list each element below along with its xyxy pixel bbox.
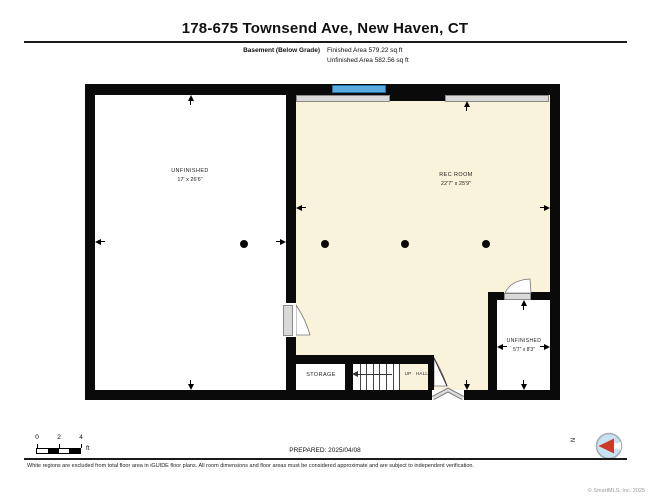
scale-tick-label: 4 — [79, 434, 83, 441]
floorplan-page: 178-675 Townsend Ave, New Haven, CT Base… — [0, 0, 650, 502]
room-unfinished-left — [95, 95, 286, 390]
door-swing-icon — [503, 277, 533, 294]
room-name: STORAGE — [306, 371, 336, 380]
door-leaf — [283, 305, 293, 336]
room-label: UNFINISHED 17' x 26'6" — [171, 167, 209, 184]
prepared-date: PREPARED: 2025/04/08 — [0, 447, 650, 454]
hall-label: HALL — [416, 371, 428, 376]
unfinished-area-text: Unfinished Area 582.56 sq ft — [327, 57, 409, 64]
bulkhead-doors-icon — [430, 385, 466, 400]
wall-segment — [488, 292, 504, 300]
measure-arrow-icon — [188, 95, 194, 101]
column-dot — [482, 240, 490, 248]
measure-arrow-icon — [296, 205, 302, 211]
floor-label: Basement (Below Grade) — [215, 47, 320, 54]
room-label: REC ROOM 22'7" x 25'9" — [439, 171, 472, 188]
stair-tread — [366, 364, 367, 390]
measure-arrow-icon — [521, 384, 527, 390]
disclaimer-text: White regions are excluded from total fl… — [27, 463, 507, 469]
hall-area — [400, 364, 428, 390]
room-dims: 22'7" x 25'9" — [439, 180, 472, 188]
room-dims: 17' x 26'6" — [171, 176, 209, 184]
scale-bar: 0 2 4 ft — [30, 434, 100, 458]
wall-segment — [286, 84, 296, 303]
scale-tick-label: 2 — [57, 434, 61, 441]
room-dims: 5'7" x 8'3" — [507, 346, 542, 354]
stair-tread — [373, 364, 374, 390]
chimney-bump — [388, 84, 445, 101]
finished-area-text: Finished Area 579.22 sq ft — [327, 47, 403, 54]
wall-segment — [85, 84, 560, 95]
wall-segment — [85, 84, 95, 400]
wall-segment — [345, 355, 353, 400]
north-label: N — [571, 438, 577, 442]
measure-arrow-icon — [464, 384, 470, 390]
window-icon — [332, 85, 386, 93]
ledge-strip — [445, 95, 549, 102]
wall-segment — [286, 355, 434, 364]
measure-arrow-icon — [464, 101, 470, 107]
measure-arrow-icon — [280, 239, 286, 245]
measure-arrow-icon — [497, 344, 503, 350]
room-label: UNFINISHED 5'7" x 8'3" — [507, 337, 542, 354]
compass-icon — [595, 432, 623, 460]
footer-divider — [24, 458, 627, 460]
column-dot — [321, 240, 329, 248]
wall-segment — [488, 292, 497, 400]
stair-edge — [399, 364, 400, 390]
stair-tread — [393, 364, 394, 390]
measure-arrow-icon — [521, 300, 527, 306]
room-name: UNFINISHED — [171, 167, 209, 176]
wall-segment — [286, 337, 296, 400]
door-swing-icon — [434, 356, 450, 388]
stair-direction-arrow — [355, 374, 392, 375]
room-name: REC ROOM — [439, 171, 472, 180]
copyright-text: © SmartMLS, Inc. 2025 — [445, 488, 645, 494]
stair-direction-arrowhead — [352, 371, 358, 377]
header-divider — [24, 41, 627, 43]
stair-tread — [360, 364, 361, 390]
column-dot — [401, 240, 409, 248]
measure-arrow-icon — [544, 205, 550, 211]
room-name: UNFINISHED — [507, 337, 542, 346]
stair-label: UP — [405, 371, 412, 376]
scale-tick-label: 0 — [35, 434, 39, 441]
measure-arrow-icon — [95, 239, 101, 245]
floorplan-drawing: UNFINISHED 17' x 26'6" REC ROOM 22'7" x … — [85, 84, 560, 400]
wall-segment — [550, 84, 560, 400]
door-swing-icon — [296, 303, 312, 337]
door-leaf — [504, 293, 531, 300]
stair-tread — [379, 364, 380, 390]
measure-arrow-icon — [544, 344, 550, 350]
ledge-strip — [296, 95, 390, 102]
stair-tread — [386, 364, 387, 390]
column-dot — [240, 240, 248, 248]
page-title: 178-675 Townsend Ave, New Haven, CT — [0, 20, 650, 37]
wall-segment — [531, 292, 550, 300]
measure-arrow-icon — [188, 384, 194, 390]
